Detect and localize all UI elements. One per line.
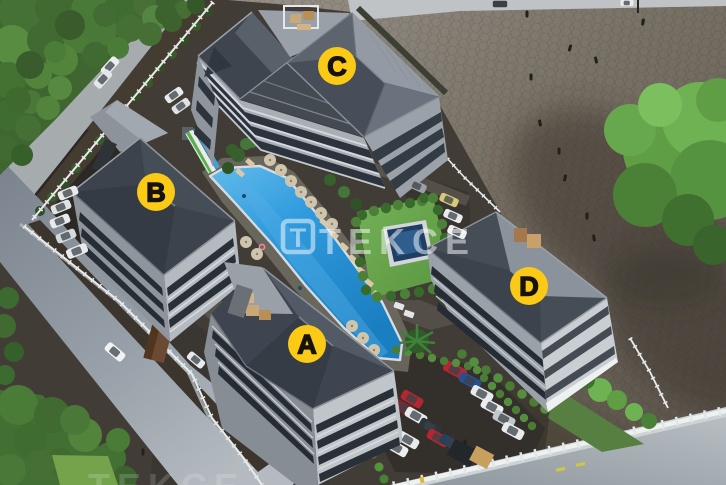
svg-text:TEKCE: TEKCE <box>319 221 476 262</box>
svg-text:A: A <box>297 330 317 360</box>
svg-text:B: B <box>146 178 166 208</box>
svg-text:TEKCE: TEKCE <box>88 466 245 485</box>
svg-text:D: D <box>519 272 539 302</box>
svg-text:C: C <box>327 52 347 82</box>
svg-text:T: T <box>290 223 307 253</box>
